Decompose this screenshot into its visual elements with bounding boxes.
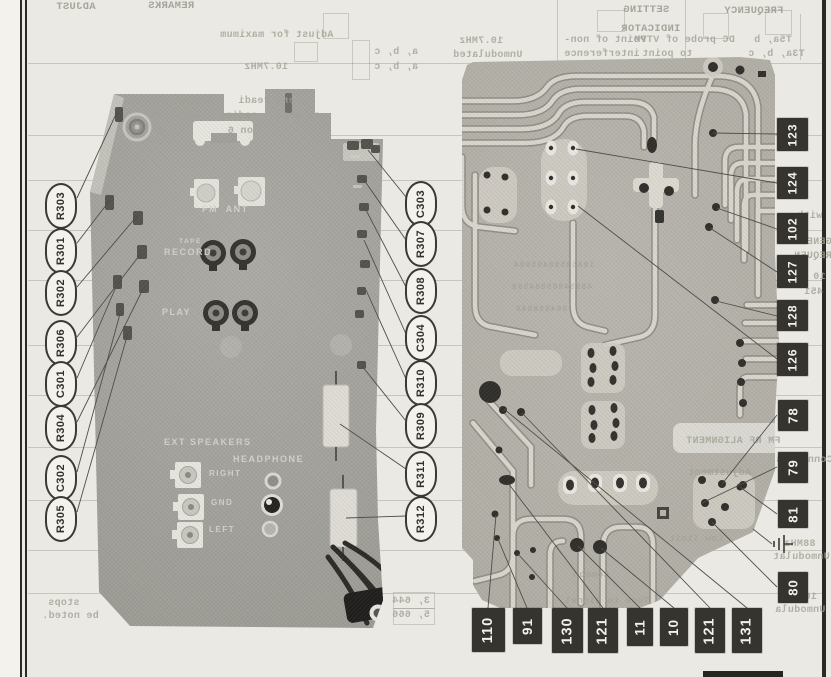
bleed-cell-box bbox=[352, 40, 370, 80]
bleedthrough-text: Unmodulated bbox=[453, 50, 522, 61]
callout-R309: R309 bbox=[405, 403, 437, 449]
callout-C302: C302 bbox=[45, 455, 77, 501]
bleedthrough-text: or nega eading obtained bbox=[150, 111, 320, 122]
bleedthrough-text: Tune to signal bbox=[565, 595, 649, 606]
bleedthrough-text: Adjust for maximum bbox=[220, 30, 333, 41]
pcb-callout-123: 123 bbox=[777, 118, 808, 151]
callout-label: R304 bbox=[55, 414, 67, 442]
chassis-panel-photo: FM ANT TAPE RECORD PLAY EXT SPEAKERS HEA… bbox=[85, 85, 430, 633]
pcb-callout-label: 127 bbox=[786, 260, 800, 283]
bleedthrough-text: 451 bbox=[804, 287, 823, 298]
border-rule-left-inner bbox=[25, 0, 28, 677]
pcb-callout-label: 79 bbox=[786, 459, 801, 475]
callout-R307: R307 bbox=[405, 221, 437, 267]
bleedthrough-text: Adjustment bbox=[688, 468, 751, 479]
panel-label-play: PLAY bbox=[162, 307, 191, 317]
panel-label-left: LEFT bbox=[209, 525, 235, 534]
bleedthrough-text: FREQUENCY bbox=[724, 5, 783, 17]
pcb-callout-label: 10 bbox=[667, 618, 682, 635]
pcb-callout-11: 11 bbox=[627, 608, 653, 646]
callout-R305: R305 bbox=[45, 496, 77, 542]
callout-R312: R312 bbox=[405, 496, 437, 542]
bleedthrough-text: SETTING bbox=[623, 4, 669, 16]
bleedthrough-text: Common bbox=[573, 569, 609, 580]
callout-label: R305 bbox=[55, 505, 67, 533]
callout-label: R312 bbox=[415, 505, 427, 533]
callout-R310: R310 bbox=[405, 360, 437, 406]
pcb-callout-label: 123 bbox=[786, 123, 800, 146]
pcb-callout-label: 11 bbox=[633, 619, 648, 635]
earth-ground-icon bbox=[770, 533, 794, 555]
pcb-callout-121: 121 bbox=[588, 608, 618, 653]
pcb-callout-label: 78 bbox=[786, 407, 801, 423]
bleed-cell-box bbox=[294, 42, 318, 62]
bleedthrough-text: 5, 666 bbox=[392, 610, 430, 621]
bleedthrough-texture: 884858848 bbox=[515, 305, 567, 314]
pcb-callout-label: 81 bbox=[786, 506, 801, 522]
callout-label: R310 bbox=[415, 369, 427, 397]
callout-label: R307 bbox=[415, 230, 427, 258]
pcb-callout-label: 110 bbox=[481, 617, 497, 643]
bleedthrough-text: DC probe of VTVM bbox=[634, 35, 735, 46]
bleedthrough-text: a, b, c bbox=[374, 62, 418, 73]
border-rule-left-outer bbox=[20, 0, 22, 677]
pcb-callout-label: 80 bbox=[786, 579, 801, 595]
callout-label: R309 bbox=[415, 412, 427, 440]
callout-label: R308 bbox=[415, 277, 427, 305]
bleedthrough-text: on 6 g. bbox=[152, 126, 253, 137]
panel-label-headphone: HEADPHONE bbox=[233, 454, 304, 464]
bleedthrough-text: stops bbox=[48, 598, 80, 609]
bleedthrough-text: Unmodula bbox=[775, 605, 825, 616]
bleedthrough-text: T3a, b, c bbox=[748, 49, 805, 60]
callout-R306: R306 bbox=[45, 320, 77, 366]
pcb-callout-102: 102 bbox=[777, 213, 808, 244]
panel-label-gnd: GND bbox=[211, 498, 233, 507]
pcb-callout-128: 128 bbox=[777, 300, 808, 331]
bleedthrough-texture: 48854885884588 bbox=[511, 283, 592, 292]
pcb-callout-label: 121 bbox=[595, 617, 611, 644]
bleedthrough-text: 10.7MHz bbox=[244, 62, 288, 73]
pcb-traces bbox=[455, 55, 785, 610]
bleedthrough-text: FM RF ALIGNMENT bbox=[686, 436, 781, 447]
bleedthrough-text: a, b, c bbox=[374, 47, 418, 58]
callout-R311: R311 bbox=[405, 451, 437, 497]
callout-R308: R308 bbox=[405, 268, 437, 314]
pcb-callout-label: 121 bbox=[702, 617, 718, 644]
pcb-callout-124: 124 bbox=[777, 167, 808, 199]
bleedthrough-text: 3, 644 bbox=[392, 596, 430, 607]
pcb-callout-121b: 121 bbox=[695, 608, 725, 653]
pcb-callout-110: 110 bbox=[472, 608, 505, 652]
bleedthrough-text: 10 bbox=[813, 272, 826, 283]
panel-label-right: RIGHT bbox=[209, 469, 241, 478]
bleedthrough-text: REMARKS bbox=[148, 0, 194, 12]
pcb-callout-131: 131 bbox=[732, 608, 762, 653]
callout-R302: R302 bbox=[45, 270, 77, 316]
panel-label-record: RECORD bbox=[164, 247, 212, 257]
page-left-margin bbox=[0, 0, 20, 677]
panel-label-tape: TAPE bbox=[179, 238, 202, 245]
border-rule-right bbox=[822, 0, 826, 677]
bleedthrough-text: interference bbox=[564, 49, 640, 60]
pcb-callout-91: 91 bbox=[513, 608, 542, 644]
pcb-callout-label: 131 bbox=[739, 617, 755, 644]
cropped-black-box bbox=[703, 671, 783, 677]
bleedthrough-text: s zero readi A positive bbox=[150, 96, 314, 107]
bleedthrough-text: to point bbox=[642, 49, 692, 60]
bleedthrough-text: T5a, b bbox=[754, 35, 792, 46]
panel-label-fm-ant: FM ANT bbox=[202, 204, 249, 214]
callout-R301: R301 bbox=[45, 228, 77, 274]
pcb-callout-80: 80 bbox=[778, 572, 808, 603]
bleedthrough-text: ADJUST bbox=[56, 1, 96, 13]
callout-R303: R303 bbox=[45, 183, 77, 229]
pcb-callout-10: 10 bbox=[660, 608, 688, 646]
callout-C301: C301 bbox=[45, 361, 77, 407]
pcb-callout-81: 81 bbox=[778, 500, 808, 528]
pcb-callout-78: 78 bbox=[778, 400, 808, 431]
pcb-callout-127: 127 bbox=[777, 255, 808, 288]
pcb-callout-label: 126 bbox=[786, 348, 800, 371]
callout-label: R303 bbox=[55, 192, 67, 220]
pcb-callout-label: 102 bbox=[786, 217, 800, 240]
callout-R304: R304 bbox=[45, 405, 77, 451]
pcb-photo: 18854588485884 48854885884588 884858848 … bbox=[455, 55, 785, 610]
bleedthrough-texture: 18854588485884 bbox=[513, 261, 594, 270]
callout-label: C303 bbox=[415, 190, 427, 218]
pcb-callout-79: 79 bbox=[778, 452, 808, 483]
callout-label: C302 bbox=[55, 464, 67, 492]
pcb-callout-label: 91 bbox=[520, 617, 535, 634]
bleedthrough-text: 10.7MHz bbox=[459, 36, 503, 47]
bleedthrough-text: be noted. bbox=[42, 611, 99, 622]
panel-graphics bbox=[85, 85, 430, 633]
grid-line bbox=[557, 0, 558, 60]
pcb-callout-126: 126 bbox=[777, 343, 808, 376]
scanned-manual-page: FM ANT TAPE RECORD PLAY EXT SPEAKERS HEA… bbox=[0, 0, 831, 677]
panel-label-ext-speakers: EXT SPEAKERS bbox=[164, 437, 252, 447]
callout-label: C301 bbox=[55, 370, 67, 398]
bleedthrough-text: Low limit bbox=[669, 533, 723, 544]
callout-label: C304 bbox=[415, 324, 427, 352]
bleedthrough-text: INDICATOR bbox=[621, 23, 680, 35]
callout-label: R311 bbox=[415, 460, 427, 488]
callout-label: R302 bbox=[55, 279, 67, 307]
callout-label: R306 bbox=[55, 329, 67, 357]
pcb-callout-label: 124 bbox=[786, 171, 800, 194]
callout-C304: C304 bbox=[405, 315, 437, 361]
pcb-callout-label: 130 bbox=[559, 617, 575, 644]
pcb-callout-130: 130 bbox=[552, 608, 583, 653]
callout-label: R301 bbox=[55, 237, 67, 265]
pcb-callout-label: 128 bbox=[786, 304, 800, 327]
